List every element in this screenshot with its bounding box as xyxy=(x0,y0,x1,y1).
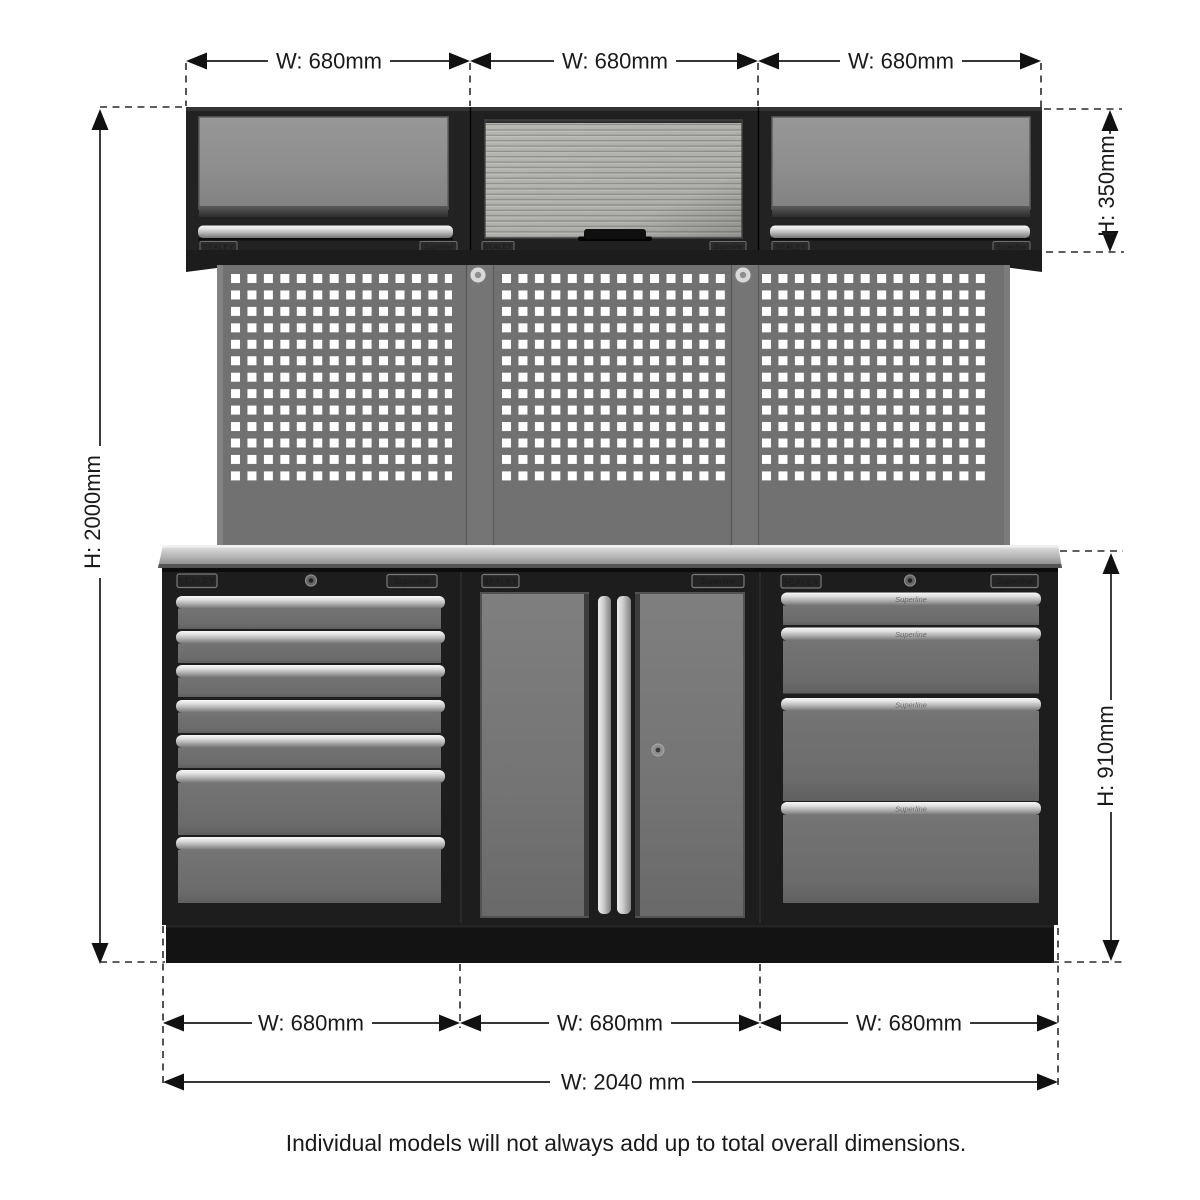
svg-text:SEALEY: SEALEY xyxy=(782,577,819,587)
svg-text:Superline: Superline xyxy=(895,630,927,639)
svg-text:H: 2000mm: H: 2000mm xyxy=(80,455,105,569)
svg-text:W: 680mm: W: 680mm xyxy=(276,49,382,74)
svg-text:SEALEY: SEALEY xyxy=(483,577,518,587)
svg-text:Superline: Superline xyxy=(997,576,1033,586)
svg-text:W: 2040 mm: W: 2040 mm xyxy=(561,1070,685,1095)
svg-text:H: 350mm: H: 350mm xyxy=(1094,135,1119,236)
svg-text:SEALEY: SEALEY xyxy=(483,244,512,251)
svg-text:W: 680mm: W: 680mm xyxy=(258,1011,364,1036)
svg-text:Individual models will not alw: Individual models will not always add up… xyxy=(286,1130,966,1156)
svg-text:W: 680mm: W: 680mm xyxy=(562,49,668,74)
svg-text:Superline: Superline xyxy=(895,701,927,710)
svg-text:Superline: Superline xyxy=(394,576,430,586)
svg-text:SEALEY: SEALEY xyxy=(178,577,215,587)
svg-text:W: 680mm: W: 680mm xyxy=(856,1011,962,1036)
svg-text:W: 680mm: W: 680mm xyxy=(848,49,954,74)
svg-text:H: 910mm: H: 910mm xyxy=(1093,705,1118,806)
svg-text:Superline: Superline xyxy=(895,595,927,604)
svg-text:Superline: Superline xyxy=(895,805,927,814)
svg-text:W: 680mm: W: 680mm xyxy=(557,1011,663,1036)
svg-text:Superline: Superline xyxy=(700,576,736,586)
svg-text:Superline: Superline xyxy=(713,244,743,251)
